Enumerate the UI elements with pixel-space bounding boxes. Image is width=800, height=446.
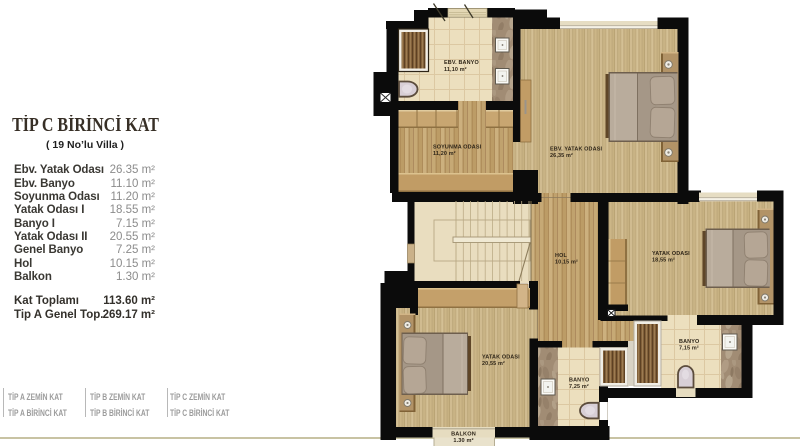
svg-text:HOL: HOL [555,253,567,259]
svg-text:7,25 m²: 7,25 m² [569,384,589,390]
svg-text:11,20 m²: 11,20 m² [433,151,456,157]
svg-text:11,10 m²: 11,10 m² [444,67,467,73]
svg-text:EBV. BANYO: EBV. BANYO [444,60,479,66]
svg-text:EBV. YATAK ODASI: EBV. YATAK ODASI [550,147,602,153]
svg-text:1.30 m²: 1.30 m² [453,437,473,444]
svg-text:20,55 m²: 20,55 m² [482,361,505,367]
svg-text:YATAK ODASI: YATAK ODASI [482,355,520,361]
svg-text:SOYUNMA ODASI: SOYUNMA ODASI [433,145,482,151]
svg-text:10,15 m²: 10,15 m² [555,260,578,266]
svg-text:BANYO: BANYO [569,378,589,384]
svg-text:7,15 m²: 7,15 m² [679,346,699,352]
svg-text:18,55 m²: 18,55 m² [652,258,675,264]
svg-text:26,35 m²: 26,35 m² [550,153,573,159]
svg-text:YATAK ODASI: YATAK ODASI [652,251,690,257]
svg-text:BALKON: BALKON [451,432,476,438]
svg-text:BANYO: BANYO [679,339,699,345]
